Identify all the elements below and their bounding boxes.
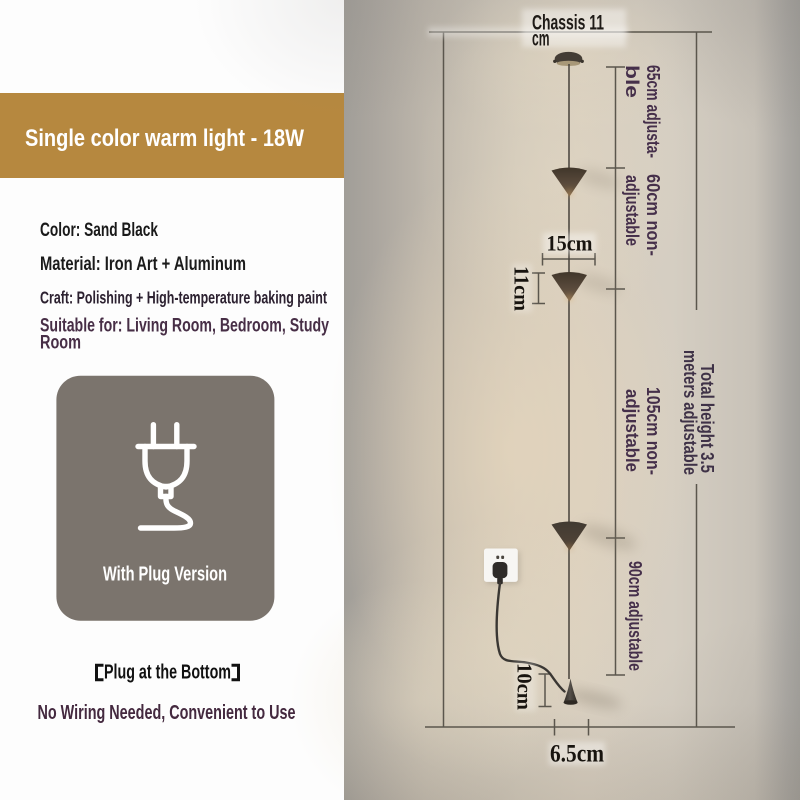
svg-text:65cm adjusta-: 65cm adjusta- <box>643 65 663 158</box>
svg-text:60cm non-: 60cm non- <box>643 174 663 256</box>
svg-text:cm: cm <box>532 28 550 51</box>
svg-text:Craft: Polishing + High-temper: Craft: Polishing + High-temperature baki… <box>40 288 327 308</box>
svg-text:Plug at the Bottom: Plug at the Bottom <box>104 662 231 684</box>
svg-text:meters adjustable: meters adjustable <box>680 350 700 475</box>
svg-text:10cm: 10cm <box>513 663 537 710</box>
svg-text:6.5cm: 6.5cm <box>550 741 604 768</box>
svg-text:Suitable for: Living Room, Bed: Suitable for: Living Room, Bedroom, Stud… <box>40 315 329 336</box>
svg-text:Single color warm light - 18W: Single color warm light - 18W <box>25 125 304 152</box>
svg-text:Material: Iron Art + Aluminum: Material: Iron Art + Aluminum <box>40 253 246 275</box>
svg-text:Room: Room <box>40 333 81 354</box>
svg-text:ble: ble <box>622 65 642 98</box>
svg-text:adjustable: adjustable <box>622 175 642 246</box>
svg-text:Color: Sand Black: Color: Sand Black <box>40 219 158 241</box>
svg-text:With Plug Version: With Plug Version <box>103 564 227 586</box>
svg-text:No Wiring Needed, Convenient t: No Wiring Needed, Convenient to Use <box>38 702 296 724</box>
svg-text:15cm: 15cm <box>547 231 593 256</box>
svg-text:90cm adjustable: 90cm adjustable <box>625 561 645 671</box>
svg-text:105cm non-: 105cm non- <box>643 387 663 475</box>
svg-text:11cm: 11cm <box>510 266 534 311</box>
svg-text:adjustable: adjustable <box>622 389 642 472</box>
